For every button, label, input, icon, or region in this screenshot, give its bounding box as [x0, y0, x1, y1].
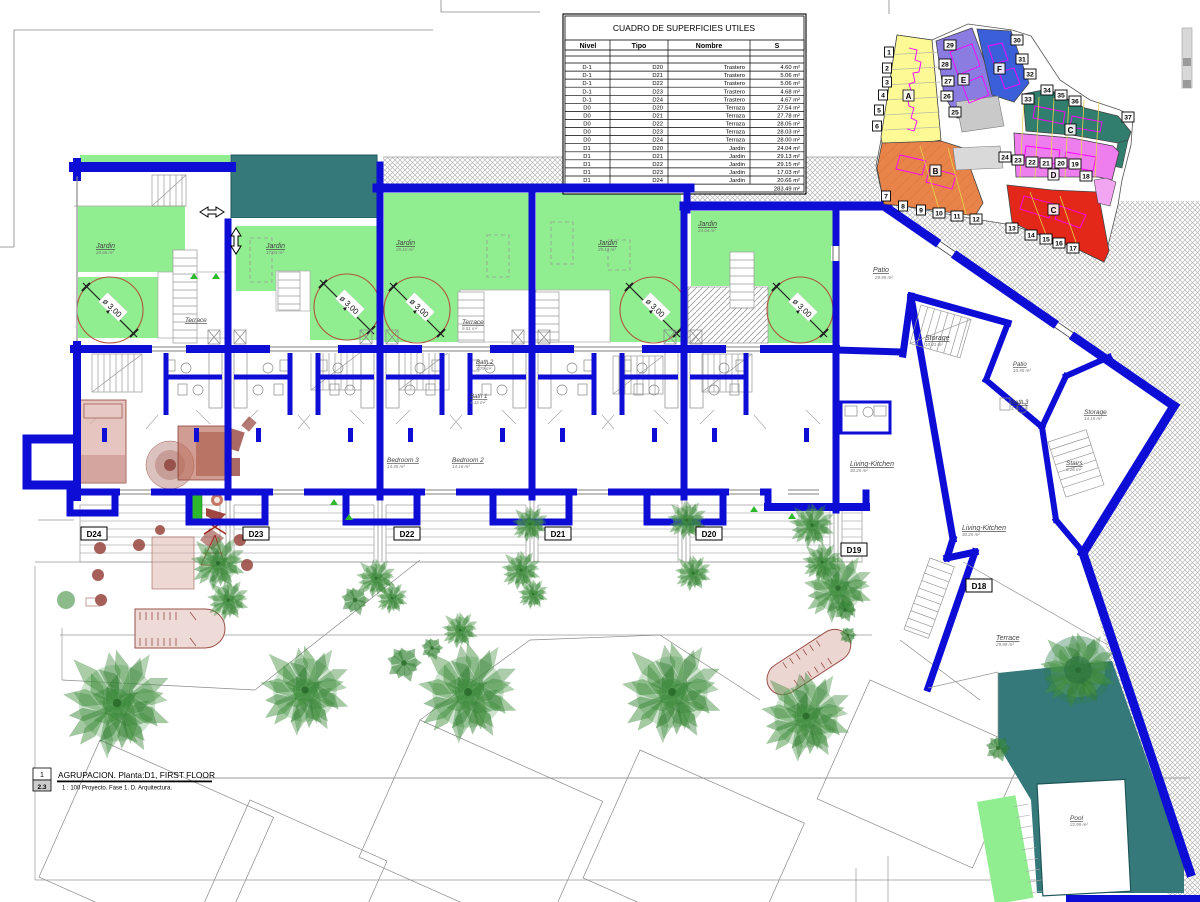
svg-text:D24: D24 [87, 530, 102, 539]
svg-text:CUADRO DE SUPERFICIES UTILES: CUADRO DE SUPERFICIES UTILES [613, 23, 755, 33]
svg-text:22.99 m²: 22.99 m² [1069, 822, 1088, 827]
svg-text:D20: D20 [702, 530, 717, 539]
svg-text:D-1: D-1 [582, 65, 591, 71]
svg-text:283.49 m²: 283.49 m² [774, 187, 800, 193]
svg-text:Storage: Storage [925, 335, 950, 342]
svg-text:25: 25 [951, 110, 959, 117]
svg-text:29.13 m²: 29.13 m² [777, 154, 800, 160]
svg-text:1 : 100 Proyecto. Fase 1. D. A: 1 : 100 Proyecto. Fase 1. D. Arquitectur… [62, 786, 172, 792]
svg-text:27.78 m²: 27.78 m² [777, 114, 800, 120]
svg-text:3: 3 [885, 80, 889, 87]
svg-text:14.35 m²: 14.35 m² [387, 464, 405, 469]
svg-text:29.99 m²: 29.99 m² [874, 275, 893, 280]
svg-text:15: 15 [1042, 237, 1050, 244]
svg-text:Jardin: Jardin [729, 170, 745, 176]
svg-text:28.00 m²: 28.00 m² [777, 138, 800, 144]
svg-text:D0: D0 [583, 114, 590, 120]
svg-text:D1: D1 [583, 170, 590, 176]
svg-text:D19: D19 [847, 546, 862, 555]
svg-text:Jardin: Jardin [265, 243, 285, 250]
svg-text:D18: D18 [972, 582, 987, 591]
svg-text:14: 14 [1027, 233, 1035, 240]
svg-text:D1: D1 [583, 178, 590, 184]
svg-text:2: 2 [885, 66, 889, 73]
svg-text:19: 19 [1071, 162, 1079, 169]
svg-text:4.67 m²: 4.67 m² [780, 97, 800, 103]
svg-text:D20: D20 [652, 105, 663, 111]
svg-text:A: A [906, 92, 912, 101]
svg-text:10: 10 [935, 211, 943, 218]
svg-text:Stairs: Stairs [1066, 460, 1083, 467]
svg-text:23: 23 [1014, 158, 1022, 165]
svg-text:B: B [933, 167, 939, 176]
svg-text:D22: D22 [652, 162, 663, 168]
svg-text:30.25 m²: 30.25 m² [962, 532, 980, 537]
svg-text:D23: D23 [652, 170, 663, 176]
svg-text:14.15 m²: 14.15 m² [1084, 416, 1102, 421]
svg-text:36: 36 [1071, 99, 1079, 106]
svg-text:33: 33 [1024, 97, 1032, 104]
svg-text:D21: D21 [652, 73, 663, 79]
svg-text:D0: D0 [583, 122, 590, 128]
svg-text:14.16 m²: 14.16 m² [452, 464, 470, 469]
svg-text:D23: D23 [249, 530, 264, 539]
svg-text:5.06 m²: 5.06 m² [780, 73, 800, 79]
svg-text:31: 31 [1018, 57, 1026, 64]
svg-text:D21: D21 [652, 154, 663, 160]
svg-text:4.12 m²: 4.12 m² [470, 400, 486, 405]
svg-text:Trastero: Trastero [724, 81, 745, 87]
svg-text:D22: D22 [652, 122, 663, 128]
svg-text:17.03 m²: 17.03 m² [777, 170, 800, 176]
svg-text:30: 30 [1013, 38, 1021, 45]
svg-text:24.04 m²: 24.04 m² [697, 228, 716, 233]
svg-text:34: 34 [1043, 88, 1051, 95]
svg-text:Terrace: Terrace [462, 319, 484, 326]
svg-text:D21: D21 [551, 530, 566, 539]
svg-text:29.15 m²: 29.15 m² [395, 247, 414, 252]
svg-text:Jardin: Jardin [697, 221, 717, 228]
svg-text:28: 28 [941, 62, 949, 69]
svg-text:29.13 m²: 29.13 m² [597, 247, 616, 252]
svg-text:Trastero: Trastero [724, 97, 745, 103]
svg-text:S: S [775, 43, 780, 50]
svg-text:3.42 m²: 3.42 m² [1011, 406, 1027, 411]
svg-text:D21: D21 [652, 114, 663, 120]
svg-text:Storage: Storage [1084, 409, 1107, 416]
svg-text:3.79 m²: 3.79 m² [476, 366, 492, 371]
svg-text:28.03 m²: 28.03 m² [777, 130, 800, 136]
svg-text:20.66 m²: 20.66 m² [95, 250, 114, 255]
svg-text:D0: D0 [583, 130, 590, 136]
svg-text:D-1: D-1 [582, 89, 591, 95]
svg-text:16: 16 [1055, 241, 1063, 248]
svg-text:Nivel: Nivel [580, 43, 597, 50]
svg-text:28.05 m²: 28.05 m² [777, 122, 800, 128]
svg-text:22: 22 [1028, 160, 1036, 167]
svg-text:Jardin: Jardin [729, 162, 745, 168]
svg-text:E: E [961, 76, 967, 85]
svg-text:Living-Kitchen: Living-Kitchen [962, 525, 1006, 532]
svg-text:Jardin: Jardin [395, 240, 415, 247]
svg-text:D24: D24 [652, 178, 663, 184]
svg-text:7: 7 [884, 194, 888, 201]
svg-text:2.3: 2.3 [37, 784, 46, 791]
svg-text:20: 20 [1057, 161, 1065, 168]
svg-text:Bedroom 2: Bedroom 2 [452, 457, 484, 464]
svg-text:D20: D20 [652, 146, 663, 152]
svg-text:Patio: Patio [873, 267, 889, 274]
svg-text:17.03 m²: 17.03 m² [266, 250, 284, 255]
svg-text:37: 37 [1124, 115, 1132, 122]
svg-text:35: 35 [1057, 93, 1065, 100]
svg-text:1: 1 [887, 50, 891, 57]
svg-text:F: F [997, 65, 1002, 74]
svg-text:D-1: D-1 [582, 81, 591, 87]
svg-text:9: 9 [919, 208, 923, 215]
svg-text:Terraza: Terraza [726, 138, 746, 144]
svg-text:Terraza: Terraza [726, 114, 746, 120]
svg-text:21: 21 [1042, 161, 1050, 168]
svg-text:10.41 m²: 10.41 m² [925, 342, 943, 347]
svg-text:Terraza: Terraza [726, 122, 746, 128]
svg-text:Terrace: Terrace [996, 635, 1020, 642]
svg-text:Jardin: Jardin [95, 243, 115, 250]
svg-text:4.68 m²: 4.68 m² [780, 89, 800, 95]
svg-text:D24: D24 [652, 138, 663, 144]
svg-text:24.04 m²: 24.04 m² [777, 146, 800, 152]
svg-text:D0: D0 [583, 105, 590, 111]
svg-text:C: C [1068, 126, 1074, 135]
svg-text:Trastero: Trastero [724, 89, 745, 95]
svg-text:10.55 m²: 10.55 m² [1013, 368, 1031, 373]
svg-text:12: 12 [972, 217, 980, 224]
svg-text:Terraza: Terraza [726, 130, 746, 136]
svg-text:D24: D24 [652, 97, 663, 103]
svg-text:26: 26 [943, 94, 951, 101]
svg-text:D20: D20 [652, 65, 663, 71]
svg-text:Jardin: Jardin [729, 154, 745, 160]
svg-text:Tipo: Tipo [632, 43, 647, 50]
svg-text:30.25 m²: 30.25 m² [850, 468, 868, 473]
svg-text:1: 1 [40, 772, 44, 779]
svg-text:D22: D22 [652, 81, 663, 87]
svg-text:D1: D1 [583, 154, 590, 160]
svg-text:Nombre: Nombre [696, 43, 723, 50]
svg-text:32: 32 [1026, 72, 1034, 79]
svg-text:D22: D22 [400, 530, 415, 539]
svg-text:D-1: D-1 [582, 97, 591, 103]
svg-text:9.51 m²: 9.51 m² [462, 326, 478, 331]
svg-text:Pool: Pool [1070, 815, 1084, 822]
svg-text:11: 11 [953, 214, 960, 221]
svg-text:8: 8 [901, 204, 905, 211]
svg-text:4.60 m²: 4.60 m² [780, 65, 800, 71]
svg-text:29: 29 [946, 43, 954, 50]
svg-text:13: 13 [1008, 226, 1016, 233]
svg-text:Jardin: Jardin [729, 146, 745, 152]
svg-text:Jardin: Jardin [729, 178, 745, 184]
svg-text:AGRUPACION. Planta:D1, FIRST F: AGRUPACION. Planta:D1, FIRST FLOOR [58, 770, 215, 780]
svg-text:29.15 m²: 29.15 m² [777, 162, 800, 168]
svg-text:4: 4 [881, 93, 885, 100]
svg-text:27: 27 [944, 79, 952, 86]
svg-text:24: 24 [1001, 155, 1009, 162]
svg-text:D-1: D-1 [582, 73, 591, 79]
svg-text:6.26 m²: 6.26 m² [1066, 467, 1082, 472]
svg-text:Bedroom 3: Bedroom 3 [387, 457, 419, 464]
svg-text:D0: D0 [583, 138, 590, 144]
svg-text:29.99 m²: 29.99 m² [995, 642, 1014, 647]
svg-text:Terrace: Terrace [185, 317, 207, 324]
svg-text:C: C [1051, 206, 1057, 215]
svg-text:Jardin: Jardin [597, 240, 617, 247]
svg-text:20.66 m²: 20.66 m² [777, 178, 800, 184]
svg-text:5.06 m²: 5.06 m² [780, 81, 800, 87]
svg-text:Trastero: Trastero [724, 73, 745, 79]
svg-text:Living-Kitchen: Living-Kitchen [850, 461, 894, 468]
svg-text:17: 17 [1069, 246, 1077, 253]
svg-text:27.54 m²: 27.54 m² [777, 105, 800, 111]
svg-text:Trastero: Trastero [724, 65, 745, 71]
svg-text:D1: D1 [583, 146, 590, 152]
svg-text:D1: D1 [583, 162, 590, 168]
svg-text:D: D [1051, 171, 1057, 180]
svg-text:6: 6 [875, 124, 879, 131]
svg-text:5: 5 [877, 108, 881, 115]
svg-text:Terraza: Terraza [726, 105, 746, 111]
svg-text:D23: D23 [652, 89, 663, 95]
svg-text:18: 18 [1082, 174, 1090, 181]
svg-text:D23: D23 [652, 130, 663, 136]
